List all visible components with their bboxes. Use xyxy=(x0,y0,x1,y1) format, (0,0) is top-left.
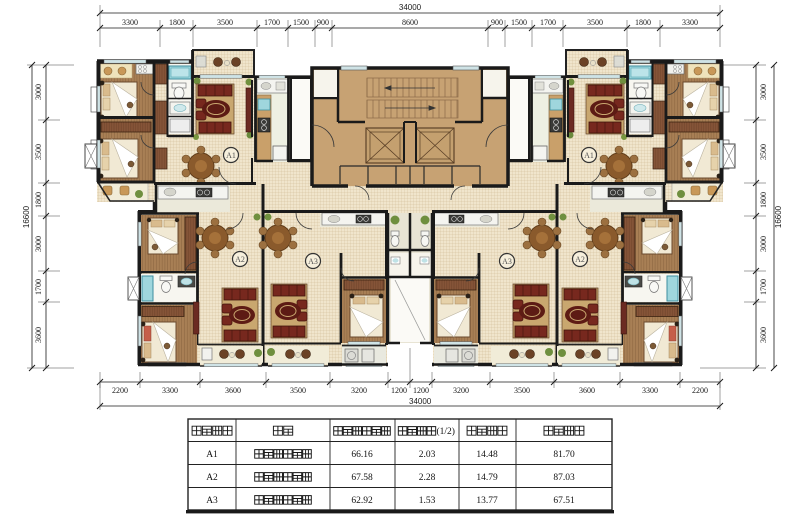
svg-text:2200: 2200 xyxy=(692,386,708,395)
svg-text:14.79: 14.79 xyxy=(476,473,498,483)
svg-text:A3: A3 xyxy=(502,257,512,266)
svg-text:900: 900 xyxy=(317,18,329,27)
svg-text:67.51: 67.51 xyxy=(553,496,575,506)
svg-text:16600: 16600 xyxy=(774,205,783,228)
svg-text:1200: 1200 xyxy=(391,386,407,395)
svg-text:3000: 3000 xyxy=(759,84,768,100)
svg-text:3000: 3000 xyxy=(34,236,43,252)
svg-text:3500: 3500 xyxy=(290,386,306,395)
svg-text:1700: 1700 xyxy=(264,18,280,27)
svg-text:A1: A1 xyxy=(226,151,236,160)
svg-text:900: 900 xyxy=(491,18,503,27)
svg-text:1800: 1800 xyxy=(169,18,185,27)
svg-text:1800: 1800 xyxy=(635,18,651,27)
svg-text:3300: 3300 xyxy=(682,18,698,27)
svg-text:A2: A2 xyxy=(235,255,245,264)
svg-text:1700: 1700 xyxy=(759,279,768,295)
svg-text:1500: 1500 xyxy=(293,18,309,27)
svg-text:A1: A1 xyxy=(206,450,218,460)
svg-text:3200: 3200 xyxy=(351,386,367,395)
svg-text:3500: 3500 xyxy=(34,144,43,160)
svg-text:3500: 3500 xyxy=(759,144,768,160)
svg-text:1800: 1800 xyxy=(759,192,768,208)
svg-text:66.16: 66.16 xyxy=(351,450,373,460)
svg-text:3600: 3600 xyxy=(579,386,595,395)
svg-text:34000: 34000 xyxy=(409,397,432,406)
svg-text:A3: A3 xyxy=(206,496,218,506)
svg-text:3500: 3500 xyxy=(514,386,530,395)
svg-text:3300: 3300 xyxy=(162,386,178,395)
svg-text:34000: 34000 xyxy=(399,3,422,12)
svg-text:3600: 3600 xyxy=(34,327,43,343)
svg-text:1200: 1200 xyxy=(413,386,429,395)
svg-text:A1: A1 xyxy=(584,151,594,160)
svg-text:(1/2): (1/2) xyxy=(437,426,455,437)
svg-text:13.77: 13.77 xyxy=(476,496,498,506)
svg-text:2.28: 2.28 xyxy=(419,473,436,483)
svg-text:87.03: 87.03 xyxy=(553,473,575,483)
svg-text:3000: 3000 xyxy=(34,84,43,100)
svg-text:81.70: 81.70 xyxy=(553,450,575,460)
svg-text:2200: 2200 xyxy=(112,386,128,395)
svg-text:3600: 3600 xyxy=(759,327,768,343)
svg-text:3200: 3200 xyxy=(453,386,469,395)
svg-text:3000: 3000 xyxy=(759,236,768,252)
svg-text:1700: 1700 xyxy=(34,279,43,295)
svg-text:1.53: 1.53 xyxy=(419,496,436,506)
svg-text:16600: 16600 xyxy=(22,205,31,228)
svg-text:3500: 3500 xyxy=(587,18,603,27)
svg-text:A2: A2 xyxy=(206,473,218,483)
svg-text:3600: 3600 xyxy=(225,386,241,395)
svg-text:3300: 3300 xyxy=(122,18,138,27)
svg-text:2.03: 2.03 xyxy=(419,450,436,460)
svg-text:1700: 1700 xyxy=(540,18,556,27)
svg-text:3500: 3500 xyxy=(217,18,233,27)
svg-text:8600: 8600 xyxy=(402,18,418,27)
svg-text:62.92: 62.92 xyxy=(351,496,373,506)
svg-text:3300: 3300 xyxy=(642,386,658,395)
svg-text:A3: A3 xyxy=(308,257,318,266)
svg-text:A2: A2 xyxy=(575,255,585,264)
svg-text:14.48: 14.48 xyxy=(476,450,498,460)
svg-text:67.58: 67.58 xyxy=(351,473,373,483)
svg-text:1800: 1800 xyxy=(34,192,43,208)
svg-text:1500: 1500 xyxy=(511,18,527,27)
